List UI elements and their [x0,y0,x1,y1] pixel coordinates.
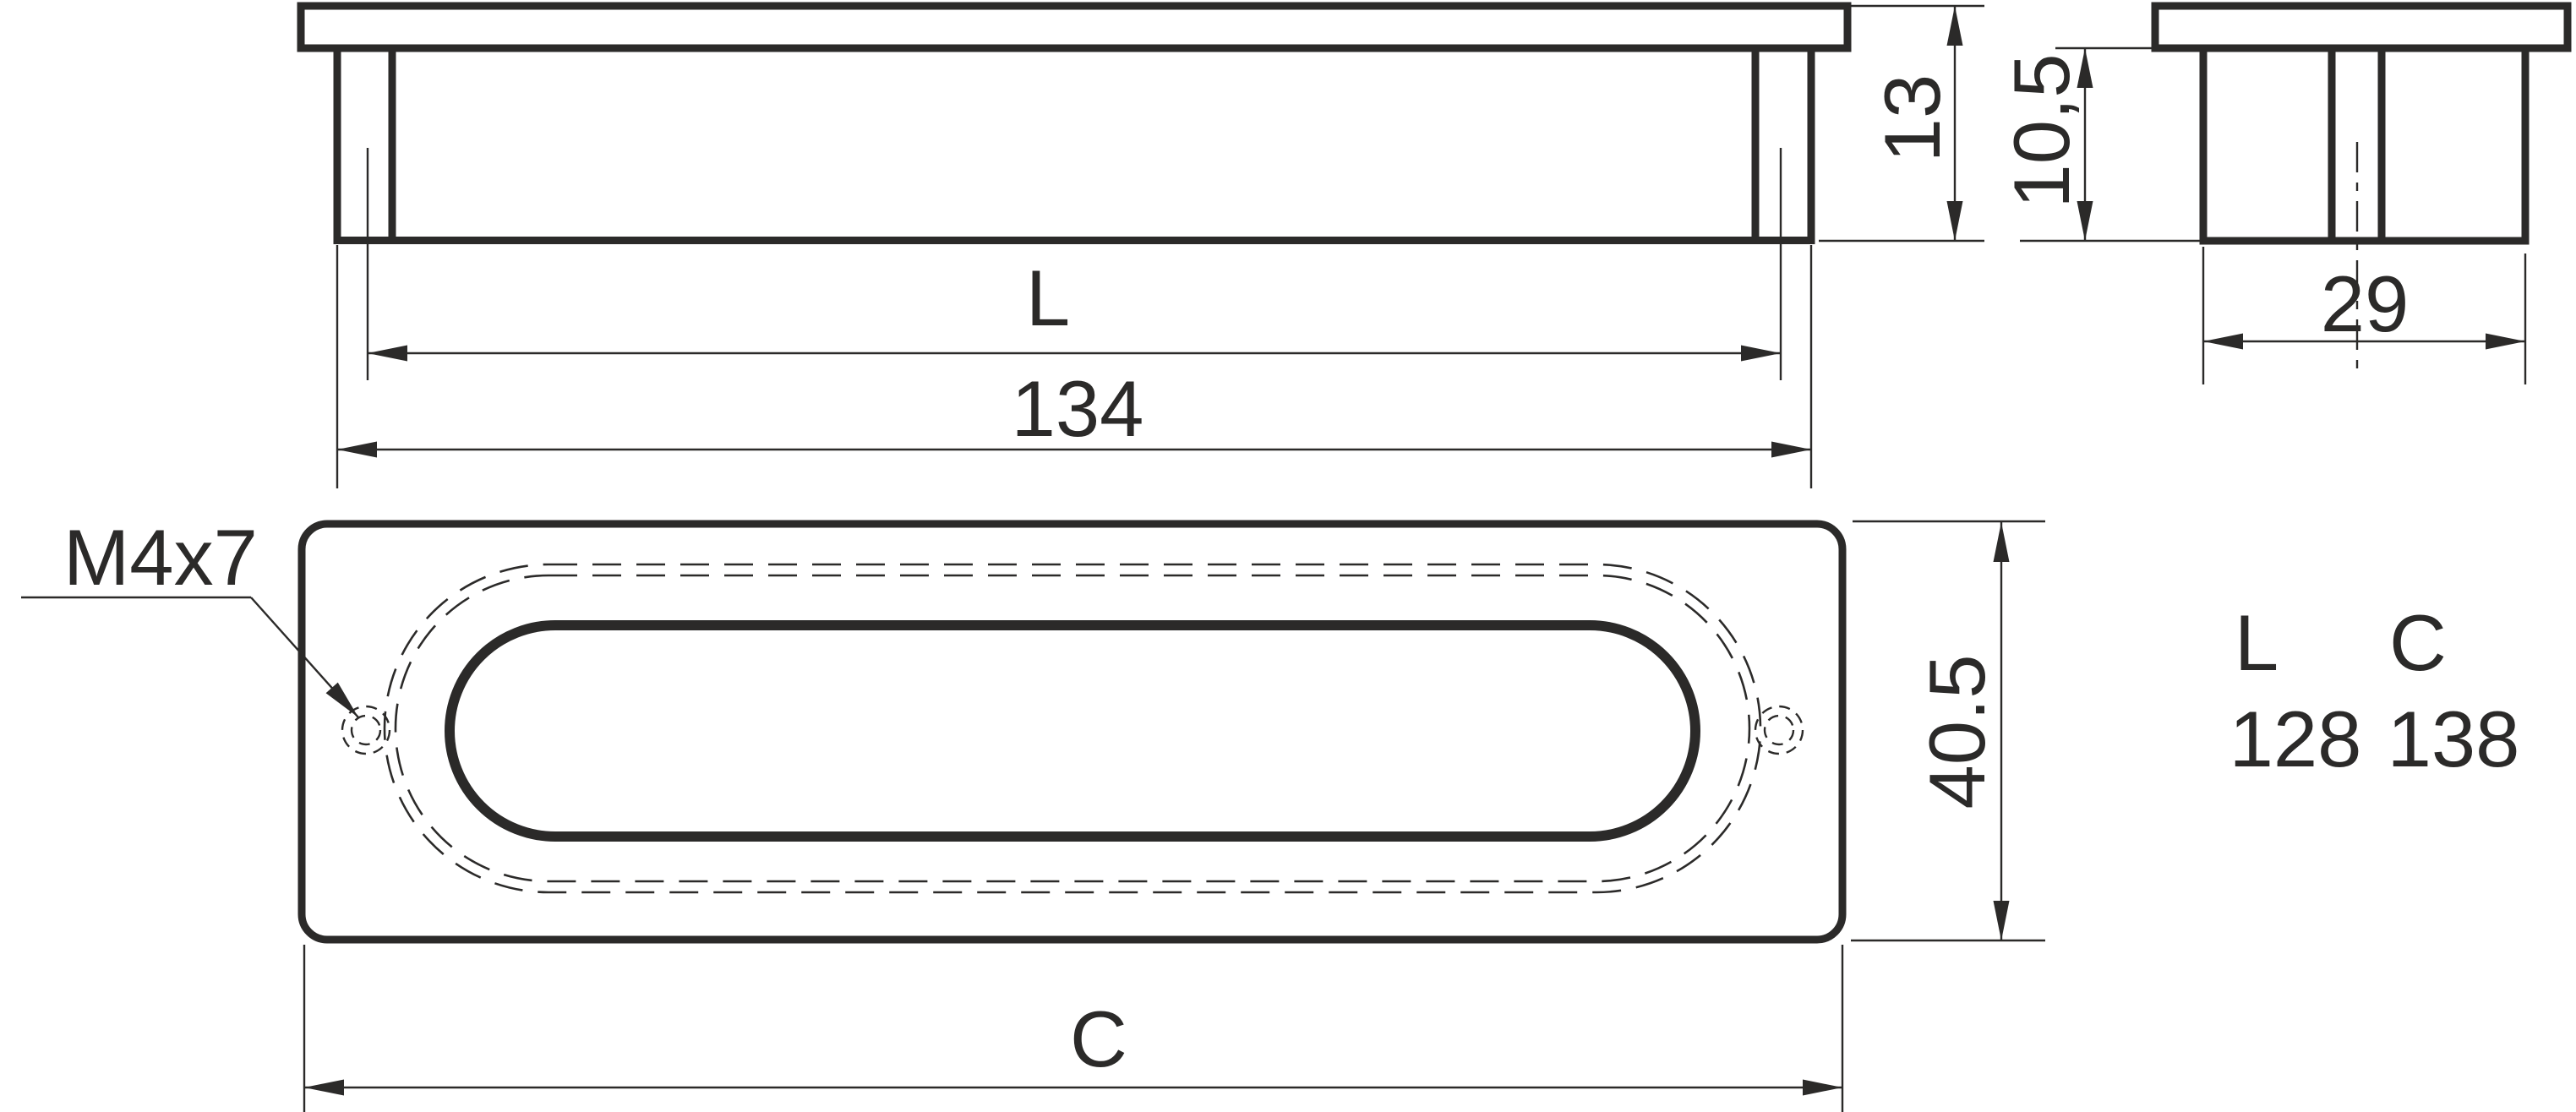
plan-view [302,524,1842,940]
dimension-10-5: 10,5 [1997,48,2203,241]
size-table-header-L: L [2235,598,2279,687]
handle-dimension-drawing: L 134 13 10,5 [0,0,2576,1112]
dim-label-L: L [1026,253,1070,342]
dim-label-13: 13 [1868,74,1957,163]
dim-label-29: 29 [2321,259,2410,348]
front-elevation-view [301,6,1847,241]
dimension-40-5: 40.5 [1851,521,2045,940]
plan-recess-opening [450,625,1695,837]
front-flange-outline [301,6,1847,48]
dim-label-C: C [1070,995,1127,1083]
dim-label-134: 134 [1012,364,1144,453]
left-screw-hole-inner [352,716,380,744]
dim-label-10-5: 10,5 [1997,54,2086,209]
dim-label-40-5: 40.5 [1913,655,2001,809]
plan-hidden-pocket-outer [385,564,1760,892]
size-table: L C 128 138 [2229,598,2520,783]
right-screw-hole-outer [1755,706,1803,754]
technical-drawing-canvas: L 134 13 10,5 [0,0,2576,1112]
end-body-outline [2203,48,2525,241]
dimension-L: L [368,148,1781,380]
dimension-13: 13 [1819,6,1984,241]
thread-callout: M4x7 [21,513,358,717]
size-table-value-L: 128 [2229,695,2362,783]
size-table-value-C: 138 [2388,695,2520,783]
dimension-C: C [304,945,1842,1112]
left-screw-hole-outer [342,706,390,754]
dimension-134: 134 [337,245,1811,488]
right-screw-hole-inner [1765,716,1793,744]
dimension-29: 29 [2203,247,2525,384]
size-table-header-C: C [2389,598,2447,687]
front-body-outline [337,48,1811,241]
end-flange-outline [2155,6,2568,48]
thread-callout-label: M4x7 [63,513,258,602]
plan-plate-outline [302,524,1842,940]
